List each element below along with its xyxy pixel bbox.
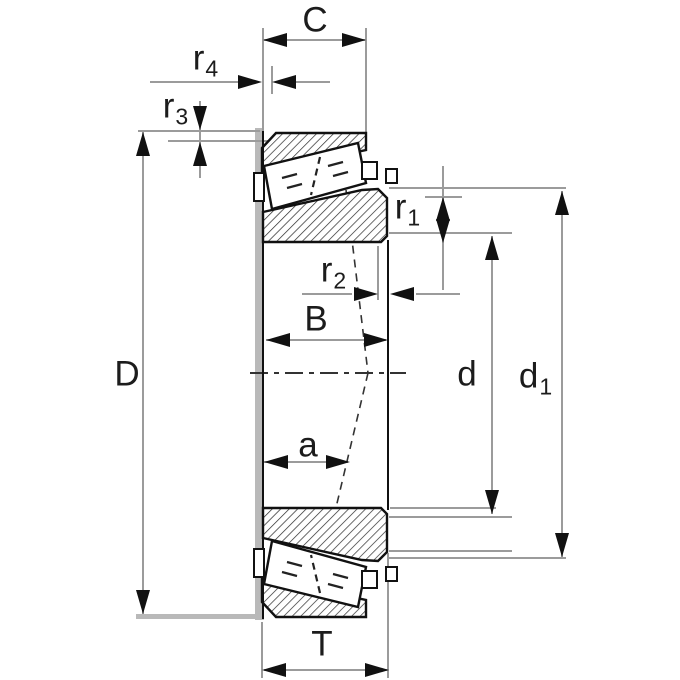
C-arrow-left [263,33,287,47]
label-r2: r2 [321,253,345,288]
label-d1: d1 [519,359,551,394]
cage-left-end-bottom [254,549,264,577]
B-arrow-right [364,333,388,347]
C-arrow-right [342,33,366,47]
r3-arrow-up [193,142,207,166]
outer-diameter-bottom-ref [136,614,260,619]
r2-arrow-right [354,287,378,301]
label-T: T [311,627,332,662]
label-r1-sub: 1 [407,207,420,230]
d-arrow-up [485,236,499,260]
d-arrow-down [485,490,499,514]
pressure-line-bottom [334,373,368,516]
label-d-text: d [457,357,476,392]
a-arrow-left [264,455,288,469]
r3-arrow-down [193,106,207,130]
r4-arrow-left [238,75,262,89]
label-r3-text: r [163,89,175,124]
label-T-text: T [311,627,332,662]
label-r4: r4 [193,41,217,76]
label-r3-sub: 3 [175,106,188,129]
cage-tab-top [386,169,397,183]
label-B: B [304,302,327,337]
label-a: a [298,428,317,463]
label-d1-text: d [519,359,538,394]
label-r2-text: r [321,253,333,288]
D-arrow-down [136,590,150,614]
label-d: d [457,357,476,392]
label-r3: r3 [163,89,187,124]
cage-left-end-top [254,173,264,201]
label-a-text: a [298,428,317,463]
label-D-text: D [114,357,139,392]
cage-tab-bottom [386,567,397,581]
bearing-dimension-drawing: C r4 r3 D r1 r2 B a d d1 T [0,0,680,680]
label-r2-sub: 2 [333,270,346,293]
drawing-canvas [0,0,680,680]
label-r1-text: r [395,190,407,225]
d1-arrow-up [555,191,569,215]
r1-arrow-down [436,219,450,243]
cage-pocket-bottom [362,571,377,588]
label-B-text: B [304,302,327,337]
d1-arrow-down [555,533,569,557]
T-arrow-right [365,663,389,677]
cage-pocket-top [362,162,377,179]
r2-arrow-left [390,287,414,301]
label-r4-text: r [193,41,205,76]
label-r1: r1 [395,190,419,225]
label-D: D [114,357,139,392]
label-C: C [302,3,327,38]
label-C-text: C [302,3,327,38]
D-arrow-up [136,132,150,156]
r1-arrow-up [436,197,450,221]
label-r4-sub: 4 [205,58,218,81]
label-d1-sub: 1 [539,376,552,399]
r4-arrow-right [272,75,296,89]
B-arrow-left [266,333,290,347]
T-arrow-left [262,663,286,677]
a-arrow-right [326,455,350,469]
